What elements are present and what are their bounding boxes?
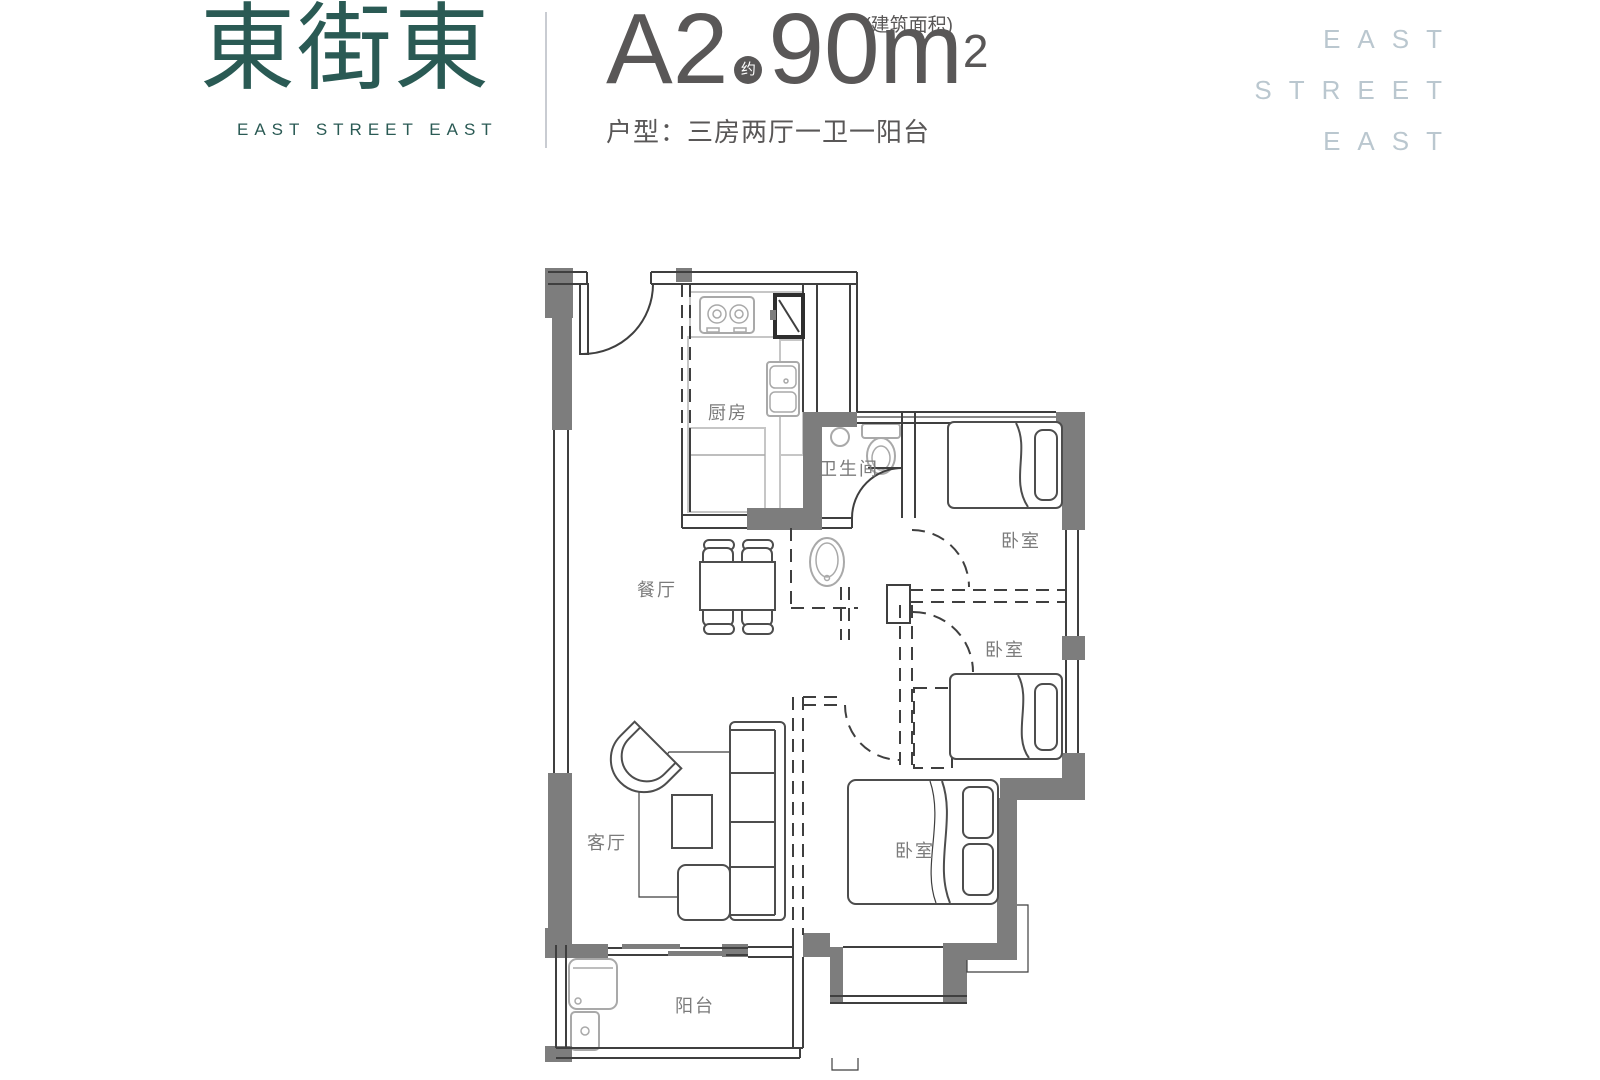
dining-table xyxy=(700,562,775,610)
entry-door xyxy=(580,284,653,354)
room-label-living: 客厅 xyxy=(587,833,627,853)
bedroom-middle-door xyxy=(913,612,973,672)
kitchen-flue xyxy=(770,295,803,337)
bed-top xyxy=(948,422,1062,508)
basin-icon xyxy=(810,538,844,586)
floorplan-sheet: 東街東 EAST STREET EAST A2 约 90m 2 (建筑面积) 户… xyxy=(0,0,1600,1080)
living-furniture xyxy=(597,722,785,920)
room-label-bathroom: 卫生间 xyxy=(819,459,879,479)
sofa-chaise xyxy=(678,865,730,920)
wardrobe xyxy=(914,688,952,768)
coffee-table xyxy=(672,795,712,848)
bathroom-fixtures xyxy=(810,422,900,586)
stove-icon xyxy=(700,297,754,333)
room-label-balcony: 阳台 xyxy=(675,996,715,1016)
room-label-kitchen: 厨房 xyxy=(708,403,748,423)
balcony-fixtures xyxy=(569,959,617,1050)
bed-middle xyxy=(950,674,1062,759)
room-label-bedroom-middle: 卧室 xyxy=(985,640,1025,660)
mop-sink-icon xyxy=(571,1012,599,1050)
floorplan-drawing: 厨房 卫生间 卧室 餐厅 卧室 客厅 卧室 阳台 xyxy=(0,0,1600,1080)
dining-furniture xyxy=(700,540,775,634)
kitchen-sink-icon xyxy=(767,362,799,416)
room-label-dining: 餐厅 xyxy=(637,580,677,600)
bedroom-top-door xyxy=(912,530,969,587)
washing-machine-icon xyxy=(569,959,617,1009)
room-label-bedroom-top: 卧室 xyxy=(1001,531,1041,551)
room-label-bedroom-master: 卧室 xyxy=(895,841,935,861)
bedroom-master-door xyxy=(845,705,900,760)
walls xyxy=(545,268,1085,1062)
